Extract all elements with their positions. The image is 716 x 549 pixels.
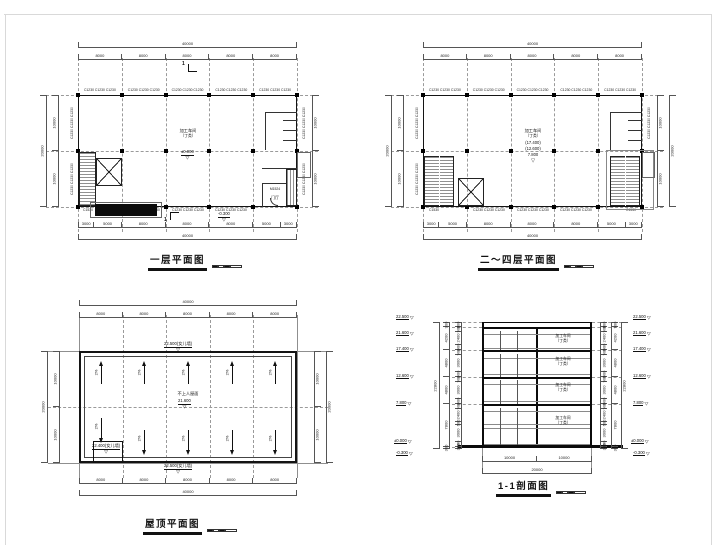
scale-bar [564,265,594,268]
dim-segment: 7800 [611,404,618,447]
dim-segment: 300 [611,447,618,449]
window-mullion [500,408,501,445]
plan2: 40000 8000 8000 8000 8000 8000 20000 100… [0,0,716,290]
dim-left-total: 20000 [385,95,392,207]
dim-segment: 7800 [443,404,450,447]
dim-overall-height: 22800 [621,322,628,449]
dim-segment: 5000 [598,222,625,228]
wall-right [590,322,592,447]
room-label: 加工车间（丁类） [543,383,583,392]
dim-segment: 900 [600,350,607,355]
dim-segment: 4800 [443,377,450,404]
level-mark: 21.600▽ [633,330,651,336]
level-mark: 22.500▽ [633,314,651,320]
floor-levels-stack: (17.400) (12.600) 7.800 ▽ [513,140,553,164]
stair-divider [625,156,626,206]
title-text: 二～四层平面图 [478,252,559,270]
dim-floor-heights: 900 4200 4800 4800 7800 300 [611,322,618,449]
dim-segment: 300 [455,447,462,449]
column-marker [421,149,425,153]
dim-bottom-halves: 10000 10000 [482,456,592,462]
window-mullion [500,331,501,350]
dim-right-total: 20000 [669,95,676,207]
dim-segment: 4800 [611,350,618,377]
level-mark: 7.800▽ [396,400,411,406]
window-mullion [500,380,501,404]
parapet-top [482,322,592,323]
dim-segment: 8000 [554,222,598,228]
stair-divider [439,156,440,206]
room-label: 加工车间（丁类） [543,416,583,425]
dim-right-halves: 10000 10000 [657,95,664,207]
dim-segment: 4800 [443,350,450,377]
dim-segment: 3000 [423,222,439,228]
window-label-right: C1230 C1230 C1230 [645,95,653,151]
window-mullion [517,380,518,404]
dim-segment: 3000 [600,382,607,399]
dim-segment: 300 [600,447,607,449]
dim-overall-height: 22800 [433,322,440,449]
dim-bottom-chain: 3000 5000 8000 8000 8000 5000 3000 [423,222,642,228]
window-label: C1230 C1230 C1230 [511,209,555,213]
level-mark: 17.400▽ [633,346,651,352]
dim-segment: 10000 [657,95,664,151]
window-label-left: C1230 C1230 C1230 [413,95,421,151]
dim-segment: 10000 [482,456,537,462]
window-label: C1230 C1230 C1230 [467,89,511,93]
dim-segment: 8000 [511,222,555,228]
toilet-wall [610,112,642,113]
level-mark: ±0.000▽ [394,438,412,444]
toilet-stall [628,120,642,121]
level-mark: 17.400▽ [396,346,414,352]
dim-segment: 10000 [397,151,404,207]
column-marker [509,93,513,97]
dim-segment: 8000 [598,54,642,60]
column-marker [596,93,600,97]
window-label: C1230 C1230 C1230 [598,89,642,93]
level-12600: (12.600) [525,146,541,151]
dim-segment: 600 [600,422,607,425]
window-label: C1230 C1230 C1230 [554,209,598,213]
toilet-stall [628,140,642,141]
dim-segment: 8000 [423,54,467,60]
level-mark: 12.600▽ [633,373,651,379]
scale-bar [556,491,586,494]
room-label: 加工车间 （丁类） [493,128,573,139]
drawing-sheet: { "titles": { "plan1": "一层平面图", "plan2":… [0,0,716,549]
dim-segment: 8000 [467,54,511,60]
dim-segment: 5000 [439,222,466,228]
window-mullion [500,354,501,377]
level-mark: ±0.000▽ [631,438,649,444]
dim-segment: 900 [600,327,607,332]
toilet-stall [628,130,642,131]
room-label: 加工车间（丁类） [543,357,583,366]
level-mark: 21.600▽ [396,330,414,336]
room-class: （丁类） [525,134,540,138]
section-title: 1-1剖面图 [496,478,586,496]
dim-segment: 20000 [385,95,392,207]
window-mullion [517,354,518,377]
level-mark: 7.800▽ [633,400,648,406]
dim-segment: 3000 [626,222,642,228]
window-label: C1230 C1230 C1230 [467,209,511,213]
column-marker [596,149,600,153]
column-marker [552,93,556,97]
dim-segment: 900 [611,322,618,327]
scale-bar-segment [582,265,594,268]
window-label: C1530 [425,209,443,213]
dim-segment: 20000 [669,95,676,207]
dim-total-width: 40000 [423,42,642,48]
dim-segment: 8000 [511,54,555,60]
section-1-1: 加工车间（丁类） 加工车间（丁类） 加工车间（丁类） 加工车间（丁类） 22.5… [0,290,716,549]
level-mark: -0.300▽ [633,450,650,456]
dim-bottom-total: 20000 [482,468,592,474]
dim-bottom-total: 40000 [423,234,642,240]
level-mark: -0.300▽ [396,450,413,456]
dim-segment: 40000 [423,234,642,240]
window-mullion [517,331,518,350]
dim-window-bands: 900 900 2400 900 900 3000 900 900 3000 9… [600,322,607,449]
room-label: 加工车间（丁类） [543,334,583,343]
dim-segment: 300 [443,447,450,449]
dim-window-bands: 900 900 2400 900 900 3000 900 900 3000 9… [455,322,462,449]
scale-bar-segment [574,491,586,494]
dim-segment: 22800 [621,322,628,449]
window-label: C1230 C1230 C1230 [511,89,555,93]
dim-segment: 900 [600,377,607,382]
level-7800: 7.800 [528,152,538,157]
dim-segment: 10000 [537,456,592,462]
dim-segment: 10000 [397,95,404,151]
column-marker [465,93,469,97]
side-porch [642,152,655,178]
dim-left-halves: 10000 10000 [397,95,404,207]
dim-segment: 20000 [482,468,592,474]
dim-floor-heights: 900 4200 4800 4800 7800 300 [443,322,450,449]
dim-segment: 10000 [657,151,664,207]
level-mark: 12.600▽ [396,373,414,379]
dim-segment: 3000 [455,382,462,399]
dim-segment: 4200 [443,327,450,350]
dim-segment: 4200 [611,327,618,350]
column-marker [465,149,469,153]
window-label-left: C1230 C1230 C1230 [413,151,421,207]
level-triangle-icon: ▽ [531,158,535,164]
window-label: C1230 C1230 C1230 [423,89,467,93]
dim-segment: 900 [600,404,607,409]
dim-segment: 22800 [433,322,440,449]
dim-bays: 8000 8000 8000 8000 8000 [423,54,642,60]
room-name: 加工车间 [525,128,542,133]
window-mullion [517,408,518,445]
dim-segment: 8000 [554,54,598,60]
dim-segment: 8000 [467,222,511,228]
level-17400: (17.400) [525,140,541,145]
toilet-wall [610,112,611,150]
level-mark: 22.500▽ [396,314,414,320]
dim-segment: 4800 [611,377,618,404]
window-label: C1230 C1230 C1230 [554,89,598,93]
column-marker [640,93,644,97]
dim-segment: 40000 [423,42,642,48]
plan2-title: 二～四层平面图 [478,252,594,270]
elevator-shaft [458,178,484,206]
column-marker [421,93,425,97]
title-text: 1-1剖面图 [496,478,551,496]
